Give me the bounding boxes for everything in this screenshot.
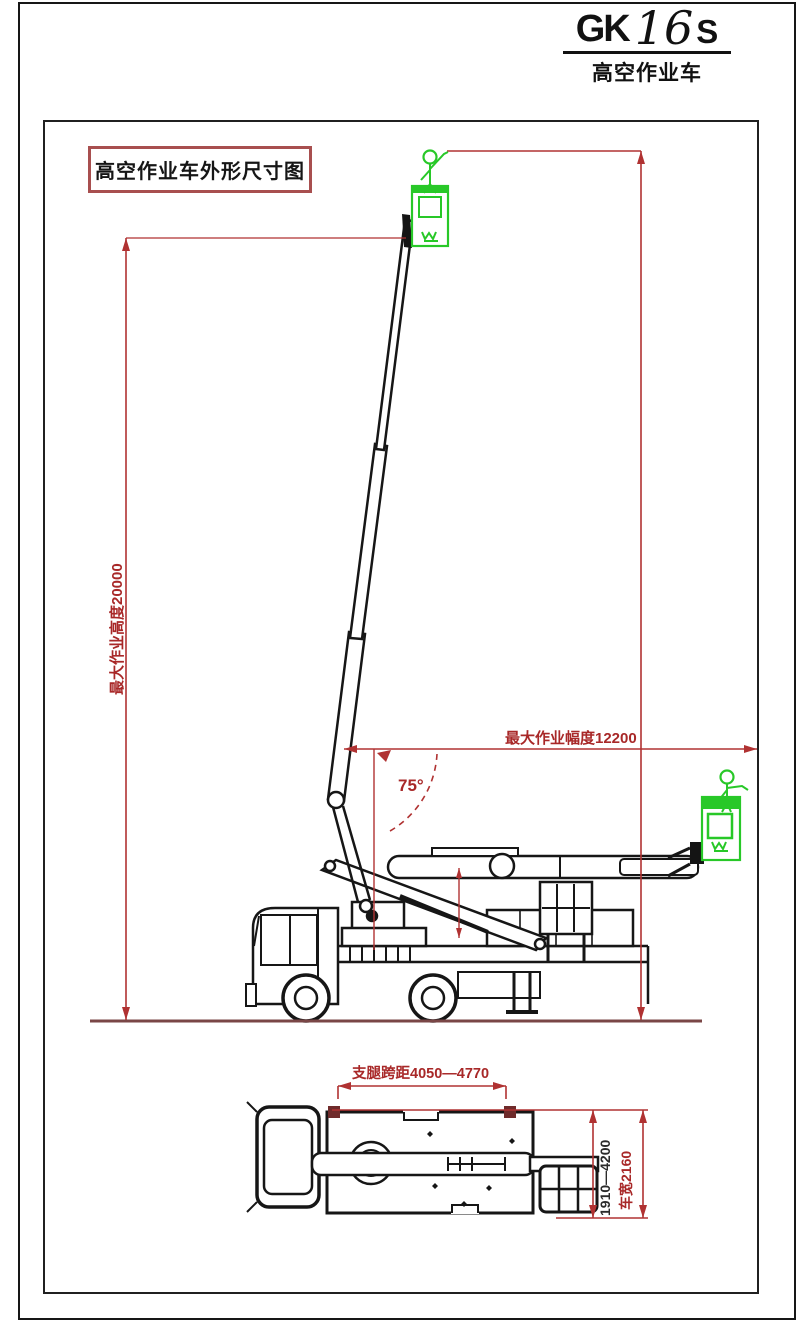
- right-basket: [702, 797, 740, 860]
- dimension-drawing: 最大作业高度20000 最大作业幅度12200 75° 支腿跨距4050—477…: [0, 0, 800, 1324]
- working-radius-label: 最大作业幅度12200: [505, 729, 637, 747]
- outrigger-span-label: 支腿跨距4050—4770: [352, 1064, 489, 1082]
- dimension-lines: [90, 151, 757, 1218]
- vehicle-width-label: 车宽2160: [618, 1151, 634, 1210]
- elevated-boom: [328, 214, 413, 912]
- outrigger-extension-label: 1910—4200: [597, 1139, 613, 1216]
- top-basket: [412, 186, 448, 246]
- boom-angle-label: 75°: [398, 776, 424, 795]
- max-height-label: 最大作业高度20000: [108, 563, 126, 695]
- horizontal-boom: [388, 842, 704, 878]
- baskets: [412, 151, 748, 861]
- side-view-truck: [246, 214, 704, 1021]
- drawing-sheet: GK 16 S 高空作业车 高空作业车外形尺寸图: [0, 0, 800, 1324]
- rear-wheel: [410, 975, 456, 1021]
- boom-pedestal: [342, 902, 426, 946]
- plan-view-truck: [247, 1102, 598, 1214]
- front-wheel: [283, 975, 329, 1021]
- plan-cab: [247, 1102, 319, 1212]
- plan-basket: [540, 1166, 597, 1212]
- stowed-platform: [540, 882, 592, 962]
